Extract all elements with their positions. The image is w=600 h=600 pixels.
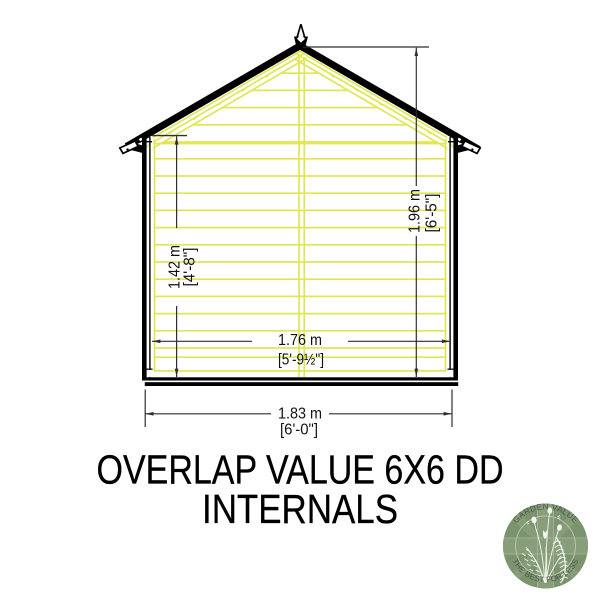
svg-text:[5'-9½"]: [5'-9½"] — [278, 352, 324, 369]
svg-text:1.96 m: 1.96 m — [407, 189, 424, 233]
svg-text:[4'-8"]: [4'-8"] — [182, 248, 199, 287]
svg-text:1.83 m: 1.83 m — [278, 405, 322, 422]
svg-text:INTERNALS: INTERNALS — [202, 486, 398, 532]
svg-text:1.76 m: 1.76 m — [278, 332, 322, 349]
svg-text:[6'-5"]: [6'-5"] — [424, 194, 441, 233]
svg-text:[6'-0"]: [6'-0"] — [280, 422, 318, 439]
